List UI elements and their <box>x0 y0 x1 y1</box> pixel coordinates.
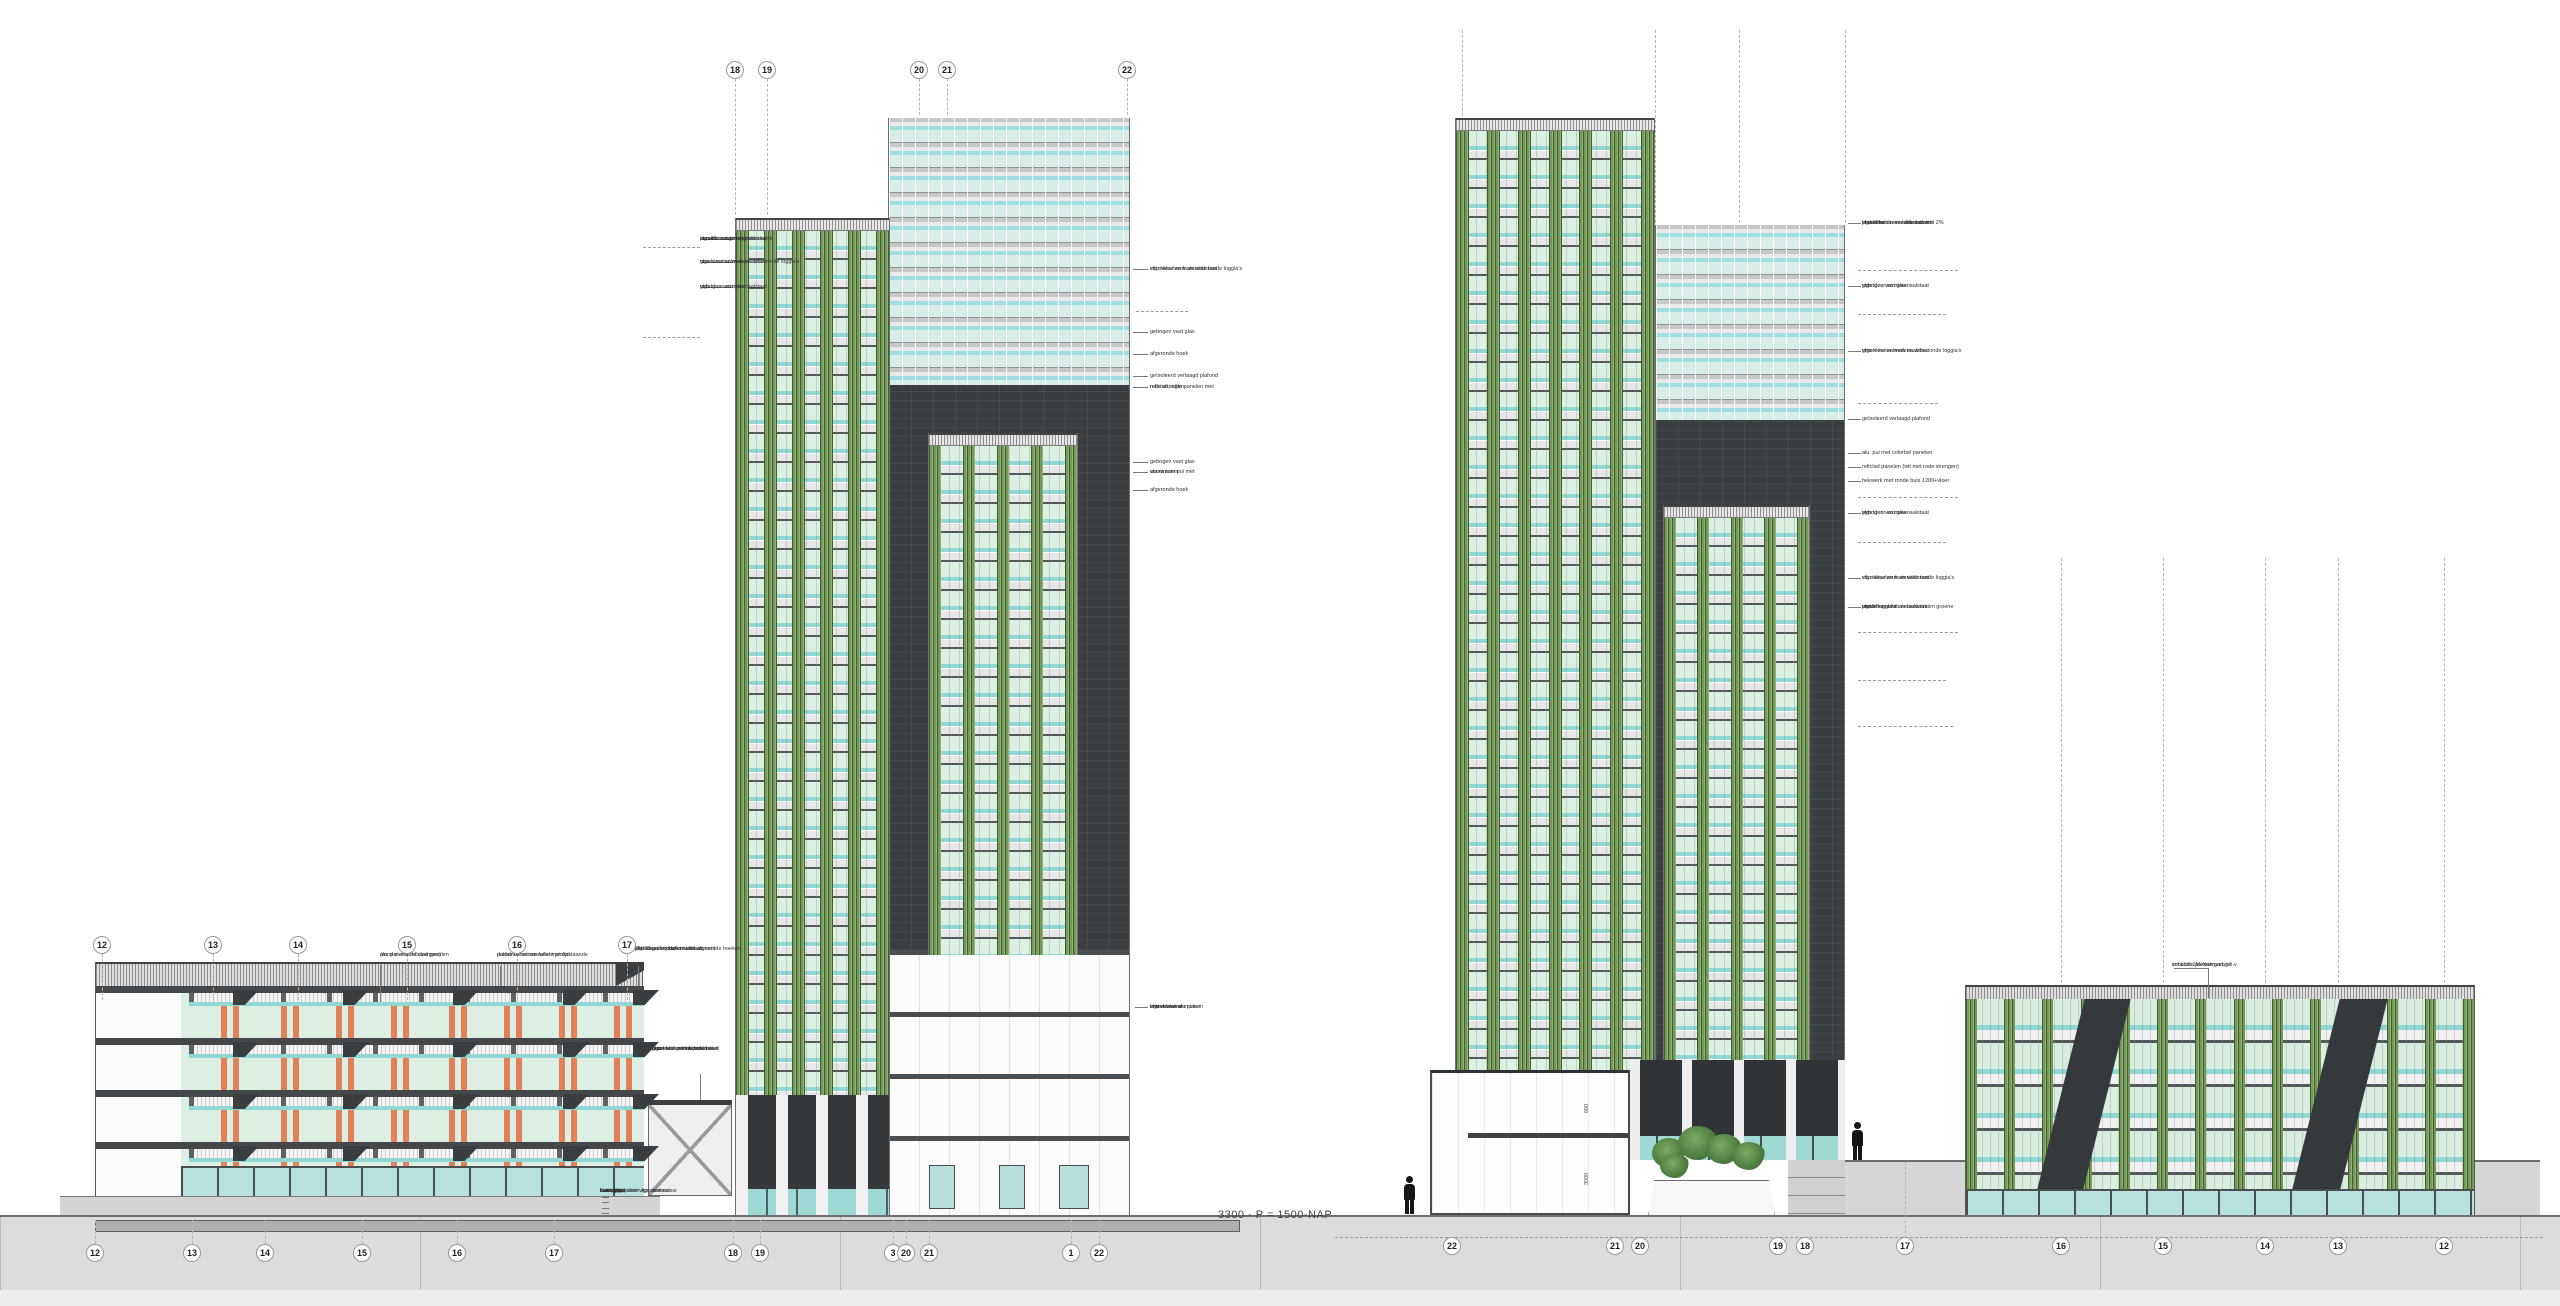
facade-pier <box>2463 999 2474 1189</box>
grid-bubble-20: 20 <box>897 1244 915 1262</box>
entrance-door <box>999 1165 1025 1209</box>
grid-bubble-22: 22 <box>1443 1237 1461 1255</box>
grid-leader-line <box>95 1220 96 1244</box>
leader-line <box>1848 419 1861 420</box>
facade-pier <box>997 446 1009 955</box>
person-head <box>1854 1122 1861 1129</box>
leader-line <box>1848 223 1861 224</box>
grid-bubble-20: 20 <box>910 61 928 79</box>
grid-bubble-14: 14 <box>2256 1237 2274 1255</box>
leader-line <box>1133 354 1148 355</box>
leader-line <box>602 1213 609 1214</box>
level-tick <box>1858 403 1938 404</box>
grid-leader-line <box>554 1220 555 1244</box>
roof-parapet <box>1456 118 1654 131</box>
base-section <box>889 950 1129 1215</box>
leader-line <box>1133 269 1148 270</box>
small-tower-left <box>928 433 1078 955</box>
balcony-nose <box>633 990 659 1005</box>
green-facade <box>929 446 1077 955</box>
leader-line <box>1848 481 1861 482</box>
grid-bubble-14: 14 <box>289 936 307 954</box>
leader-line <box>1133 376 1148 377</box>
facade-pier <box>876 231 889 1095</box>
grid-leader-line <box>298 954 299 1000</box>
facade-pier <box>1065 446 1077 955</box>
grid-line <box>1845 30 1846 223</box>
deck-steps <box>1788 1160 1845 1215</box>
level-tick <box>1858 542 1946 543</box>
level-tick <box>1858 270 1958 271</box>
green-facade <box>1664 518 1809 1060</box>
grid-bubble-16: 16 <box>508 936 526 954</box>
facade-pier <box>1641 131 1654 1070</box>
facade-pier <box>2272 999 2283 1189</box>
leader-line <box>1848 578 1861 579</box>
leader-line <box>2208 968 2209 998</box>
leader-line <box>1133 387 1148 388</box>
dimension-text: 3000 <box>1584 1173 1590 1185</box>
grid-leader-line <box>407 954 408 1000</box>
grid-bubble-13: 13 <box>183 1244 201 1262</box>
leader-line <box>1848 453 1861 454</box>
floor-row <box>181 1038 644 1090</box>
entrance-door <box>1059 1165 1089 1209</box>
grid-bubble-13: 13 <box>204 936 222 954</box>
grid-bubble-18: 18 <box>724 1244 742 1262</box>
level-tick <box>643 247 700 248</box>
floor-slab <box>96 986 181 993</box>
floor-row <box>181 986 644 1038</box>
leader-line <box>1848 286 1861 287</box>
grid-leader-line <box>1127 79 1128 115</box>
ground-band-lower <box>0 1290 2560 1306</box>
small-tower-right <box>1663 505 1810 1060</box>
person-head <box>1406 1176 1413 1183</box>
person-body <box>1404 1184 1415 1200</box>
grid-bubble-18: 18 <box>1796 1237 1814 1255</box>
grid-bubble-22: 22 <box>1090 1244 1108 1262</box>
roof-parapet <box>1966 985 2474 999</box>
low-building-left <box>95 962 643 1196</box>
grid-leader-line <box>627 954 628 1000</box>
facade-pier <box>764 231 777 1095</box>
grid-bubble-15: 15 <box>398 936 416 954</box>
grid-bubble-15: 15 <box>2154 1237 2172 1255</box>
facade-pier <box>2425 999 2436 1189</box>
level-tick <box>1136 311 1188 312</box>
leader-line <box>1848 467 1861 468</box>
grid-bubble-21: 21 <box>920 1244 938 1262</box>
green-facade <box>736 231 889 1095</box>
grid-leader-line <box>919 79 920 115</box>
person-leg <box>1405 1200 1409 1214</box>
grid-bubble-12: 12 <box>2435 1237 2453 1255</box>
grid-line <box>2338 558 2339 983</box>
grid-leader-line <box>192 1220 193 1244</box>
tower-plinth <box>736 1095 889 1215</box>
person-leg <box>1410 1200 1414 1214</box>
main-tower-right <box>1455 118 1655 1070</box>
grid-leader-line <box>1099 1220 1100 1244</box>
grid-line <box>2163 558 2164 983</box>
facade-pier <box>1731 518 1743 1060</box>
leader-line <box>1133 332 1148 333</box>
leader-line <box>602 1208 609 1209</box>
grid-bubble-1: 1 <box>1062 1244 1080 1262</box>
grid-leader-line <box>893 1220 894 1244</box>
grid-line <box>2265 558 2266 983</box>
foundation-strip <box>95 1220 1240 1232</box>
facade-pier <box>736 231 749 1095</box>
facade-pier <box>792 231 805 1095</box>
grid-bubble-21: 21 <box>1606 1237 1624 1255</box>
facade-pier <box>1456 131 1469 1070</box>
penthouse-glazing <box>1656 225 1844 420</box>
pavement-left <box>60 1196 660 1215</box>
leader-line <box>602 1197 609 1198</box>
grid-bubble-16: 16 <box>2052 1237 2070 1255</box>
facade-pier <box>2157 999 2168 1189</box>
level-tick <box>1858 632 1958 633</box>
grid-leader-line <box>767 79 768 215</box>
grid-bubble-13: 13 <box>2329 1237 2347 1255</box>
gallery-facade <box>181 986 644 1196</box>
mezzanine-slab <box>1468 1133 1628 1138</box>
grid-leader-line <box>733 1220 734 1244</box>
facade-pier <box>1797 518 1809 1060</box>
facade-pier <box>1549 131 1562 1070</box>
grid-leader-line <box>929 1220 930 1244</box>
grid-bubble-18: 18 <box>726 61 744 79</box>
grid-line <box>1655 30 1656 223</box>
person-body <box>1852 1130 1863 1146</box>
leader-line <box>1848 607 1861 608</box>
grid-line <box>1739 30 1740 223</box>
facade-pier <box>1487 131 1500 1070</box>
leader-line <box>1135 1007 1148 1008</box>
leader-line <box>1133 462 1148 463</box>
prefab-gate <box>648 1100 732 1196</box>
penthouse-glazing <box>889 118 1129 385</box>
floor-slab <box>96 1090 181 1097</box>
roof-parapet <box>1664 505 1809 518</box>
facade-pier <box>2234 999 2245 1189</box>
datum-label: 3300 - P = 1500-NAP <box>1218 1209 1332 1221</box>
grid-line <box>2444 558 2445 983</box>
grid-leader-line <box>102 954 103 1000</box>
elevation-drawing: 600 3000 3300 - P = 1500-NAP 18192021221… <box>0 0 2560 1306</box>
green-facade <box>1456 131 1654 1070</box>
level-tick <box>1858 314 1946 315</box>
facade-pier <box>1966 999 1977 1189</box>
roof-parapet <box>96 962 642 986</box>
grid-bubble-19: 19 <box>758 61 776 79</box>
grid-bubble-14: 14 <box>256 1244 274 1262</box>
grid-bubble-22: 22 <box>1118 61 1136 79</box>
low-building-right <box>1965 985 2475 1215</box>
floor-slab <box>889 1136 1129 1141</box>
grid-bubble-17: 17 <box>1896 1237 1914 1255</box>
level-tick <box>1858 726 1953 727</box>
facade-pier <box>2004 999 2015 1189</box>
main-tower-left <box>735 218 890 1215</box>
floor-slab <box>96 1038 181 1045</box>
base-section-right: 600 3000 <box>1430 1070 1630 1215</box>
grid-line <box>1462 30 1463 116</box>
facade-pier <box>963 446 975 955</box>
facade-pier <box>1764 518 1776 1060</box>
leader-line <box>1133 472 1148 473</box>
grid-bubble-19: 19 <box>1769 1237 1787 1255</box>
facade-pier <box>1610 131 1623 1070</box>
dimension-text: 600 <box>1584 1104 1590 1113</box>
grid-line <box>1905 1162 1906 1238</box>
leader-line <box>638 966 639 986</box>
roof-parapet <box>736 218 889 231</box>
level-tick <box>643 337 700 338</box>
grid-bubble-16: 16 <box>448 1244 466 1262</box>
grid-bubble-12: 12 <box>93 936 111 954</box>
person-leg <box>1858 1146 1862 1160</box>
roof-parapet <box>929 433 1077 446</box>
stair-section <box>96 986 181 1196</box>
floor-slab <box>889 1074 1129 1079</box>
leader-line <box>1848 351 1861 352</box>
shrub <box>1732 1142 1766 1170</box>
planter-box <box>1648 1180 1775 1216</box>
entrance-door <box>929 1165 955 1209</box>
grid-leader-line <box>735 79 736 215</box>
leader-line <box>1848 513 1861 514</box>
grid-leader-line <box>947 79 948 115</box>
ground-floor-glazing <box>181 1166 644 1196</box>
facade-pier <box>1518 131 1531 1070</box>
facade-pier <box>2387 999 2398 1189</box>
grid-bubble-21: 21 <box>938 61 956 79</box>
leader-line <box>500 966 501 986</box>
facade-pier <box>1031 446 1043 955</box>
leader-line <box>700 1074 701 1100</box>
grid-leader-line <box>1071 1220 1072 1244</box>
grid-bubble-17: 17 <box>545 1244 563 1262</box>
grid-leader-line <box>517 954 518 1000</box>
grid-leader-line <box>265 1220 266 1244</box>
facade-pier <box>1579 131 1592 1070</box>
grid-leader-line <box>362 1220 363 1244</box>
grid-bubble-19: 19 <box>751 1244 769 1262</box>
leader-line <box>380 965 381 1002</box>
person-leg <box>1853 1146 1857 1160</box>
shrub <box>1660 1154 1690 1178</box>
level-tick <box>1858 497 1958 498</box>
facade-pier <box>820 231 833 1095</box>
datum-dash-line <box>1335 1237 2543 1238</box>
green-facade <box>1966 999 2474 1189</box>
grid-leader-line <box>760 1220 761 1244</box>
facade-pier <box>929 446 941 955</box>
leader-line <box>1133 490 1148 491</box>
floor-slab <box>889 1012 1129 1017</box>
grid-leader-line <box>213 954 214 1000</box>
floor-slab <box>96 1142 181 1149</box>
grid-bubble-15: 15 <box>353 1244 371 1262</box>
grid-bubble-20: 20 <box>1631 1237 1649 1255</box>
floor-row <box>181 1090 644 1142</box>
facade-pier <box>1664 518 1676 1060</box>
grid-bubble-17: 17 <box>618 936 636 954</box>
ground-floor-glazing <box>1966 1189 2474 1215</box>
person-silhouette <box>1852 1122 1863 1160</box>
leader-line <box>602 1202 609 1203</box>
facade-pier <box>848 231 861 1095</box>
grid-bubble-12: 12 <box>86 1244 104 1262</box>
grid-leader-line <box>457 1220 458 1244</box>
level-tick <box>1858 680 1946 681</box>
grid-leader-line <box>906 1220 907 1244</box>
grid-line <box>2061 558 2062 983</box>
person-silhouette <box>1404 1176 1415 1214</box>
plinth-columns <box>736 1095 889 1215</box>
facade-pier <box>1697 518 1709 1060</box>
facade-pier <box>2195 999 2206 1189</box>
